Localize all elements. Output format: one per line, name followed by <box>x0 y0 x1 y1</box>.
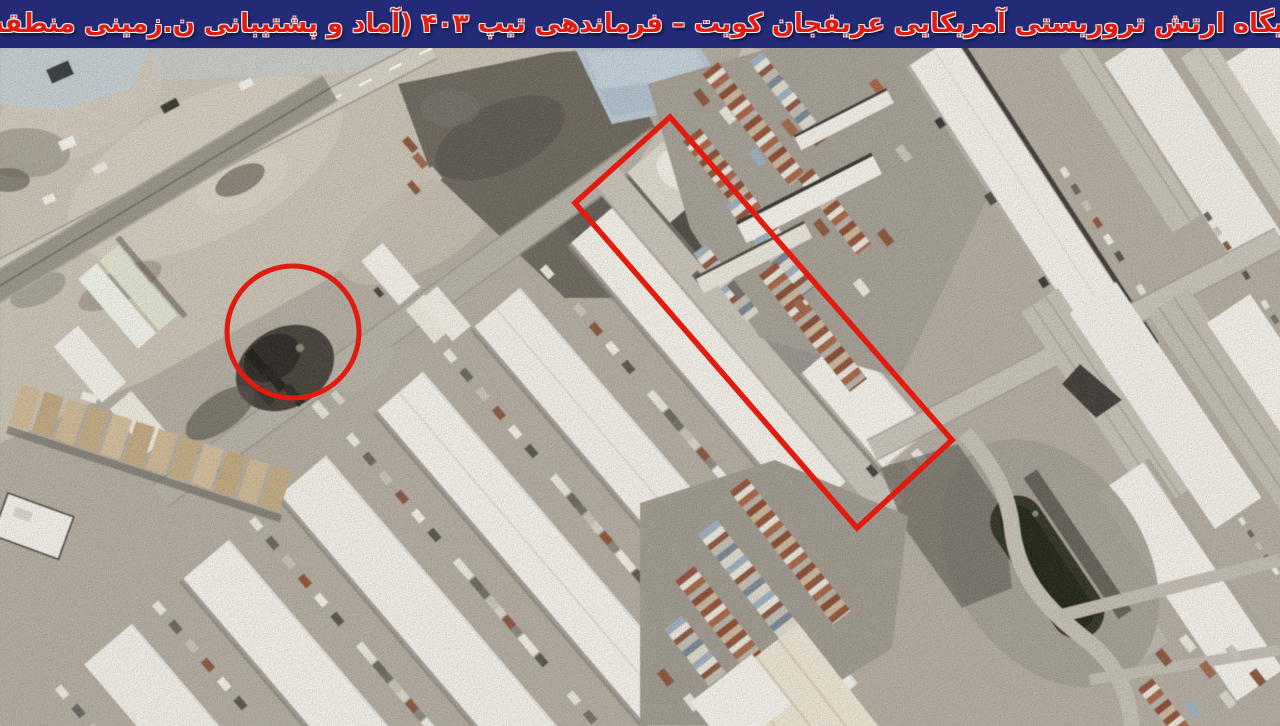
header-banner: پایگاه ارتش تروریستی آمریکایی عریفجان کو… <box>0 0 1280 48</box>
grain-overlay-light <box>0 48 1280 726</box>
satellite-image <box>0 48 1280 726</box>
banner-title: پایگاه ارتش تروریستی آمریکایی عریفجان کو… <box>0 9 1280 39</box>
satellite-scene <box>0 48 1280 726</box>
screenshot-root: پایگاه ارتش تروریستی آمریکایی عریفجان کو… <box>0 0 1280 726</box>
